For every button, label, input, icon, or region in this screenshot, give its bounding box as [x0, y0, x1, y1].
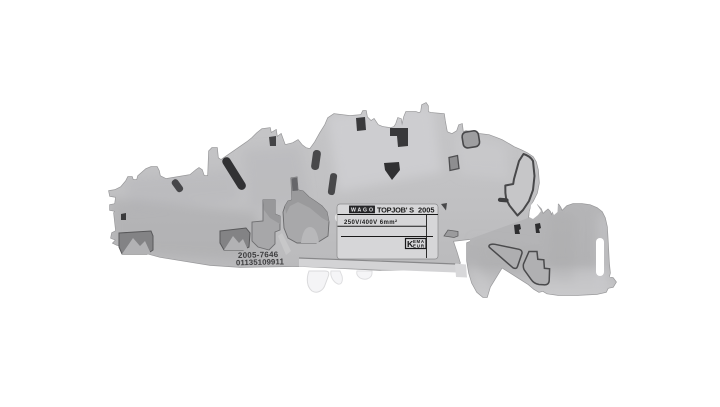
svg-text:2005: 2005	[418, 206, 434, 215]
svg-text:TOPJOB' S: TOPJOB' S	[377, 206, 414, 215]
svg-text:0113510991: 0113510991	[236, 257, 281, 267]
svg-text:250V/400V 6mm²: 250V/400V 6mm²	[344, 219, 397, 226]
svg-text:1: 1	[280, 258, 285, 267]
svg-text:EUR: EUR	[413, 244, 425, 249]
